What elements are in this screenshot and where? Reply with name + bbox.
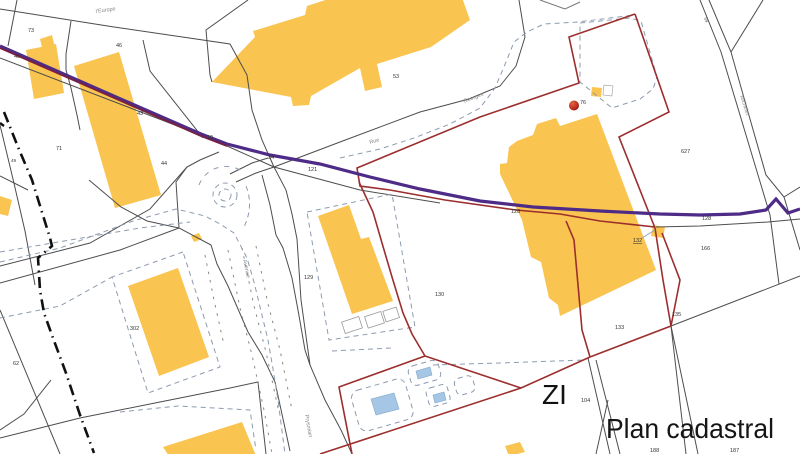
- svg-text:121: 121: [308, 167, 317, 173]
- svg-text:Plan cadastral: Plan cadastral: [606, 413, 774, 444]
- svg-text:46: 46: [116, 43, 122, 49]
- svg-text:188: 188: [650, 448, 659, 454]
- svg-text:130: 130: [435, 292, 444, 298]
- svg-text:166: 166: [701, 246, 710, 252]
- svg-text:49: 49: [11, 158, 17, 163]
- svg-text:133: 133: [615, 325, 624, 331]
- svg-text:71: 71: [56, 146, 62, 152]
- svg-text:132: 132: [633, 238, 642, 244]
- svg-text:76: 76: [580, 100, 586, 106]
- svg-text:43: 43: [137, 111, 143, 117]
- svg-text:128: 128: [511, 209, 520, 215]
- svg-text:40: 40: [14, 54, 20, 60]
- svg-text:627: 627: [681, 149, 690, 155]
- svg-text:53: 53: [393, 74, 399, 80]
- svg-text:128: 128: [702, 216, 711, 222]
- svg-text:73: 73: [28, 28, 34, 34]
- svg-text:135: 135: [672, 312, 681, 318]
- svg-text:187: 187: [730, 448, 739, 454]
- svg-text:104: 104: [581, 398, 590, 404]
- svg-text:302: 302: [130, 326, 139, 332]
- svg-text:62: 62: [13, 361, 19, 367]
- svg-text:129: 129: [304, 275, 313, 281]
- svg-text:ZI: ZI: [542, 379, 567, 410]
- svg-text:19: 19: [207, 135, 213, 141]
- svg-text:44: 44: [161, 161, 167, 167]
- svg-text:34: 34: [268, 155, 274, 161]
